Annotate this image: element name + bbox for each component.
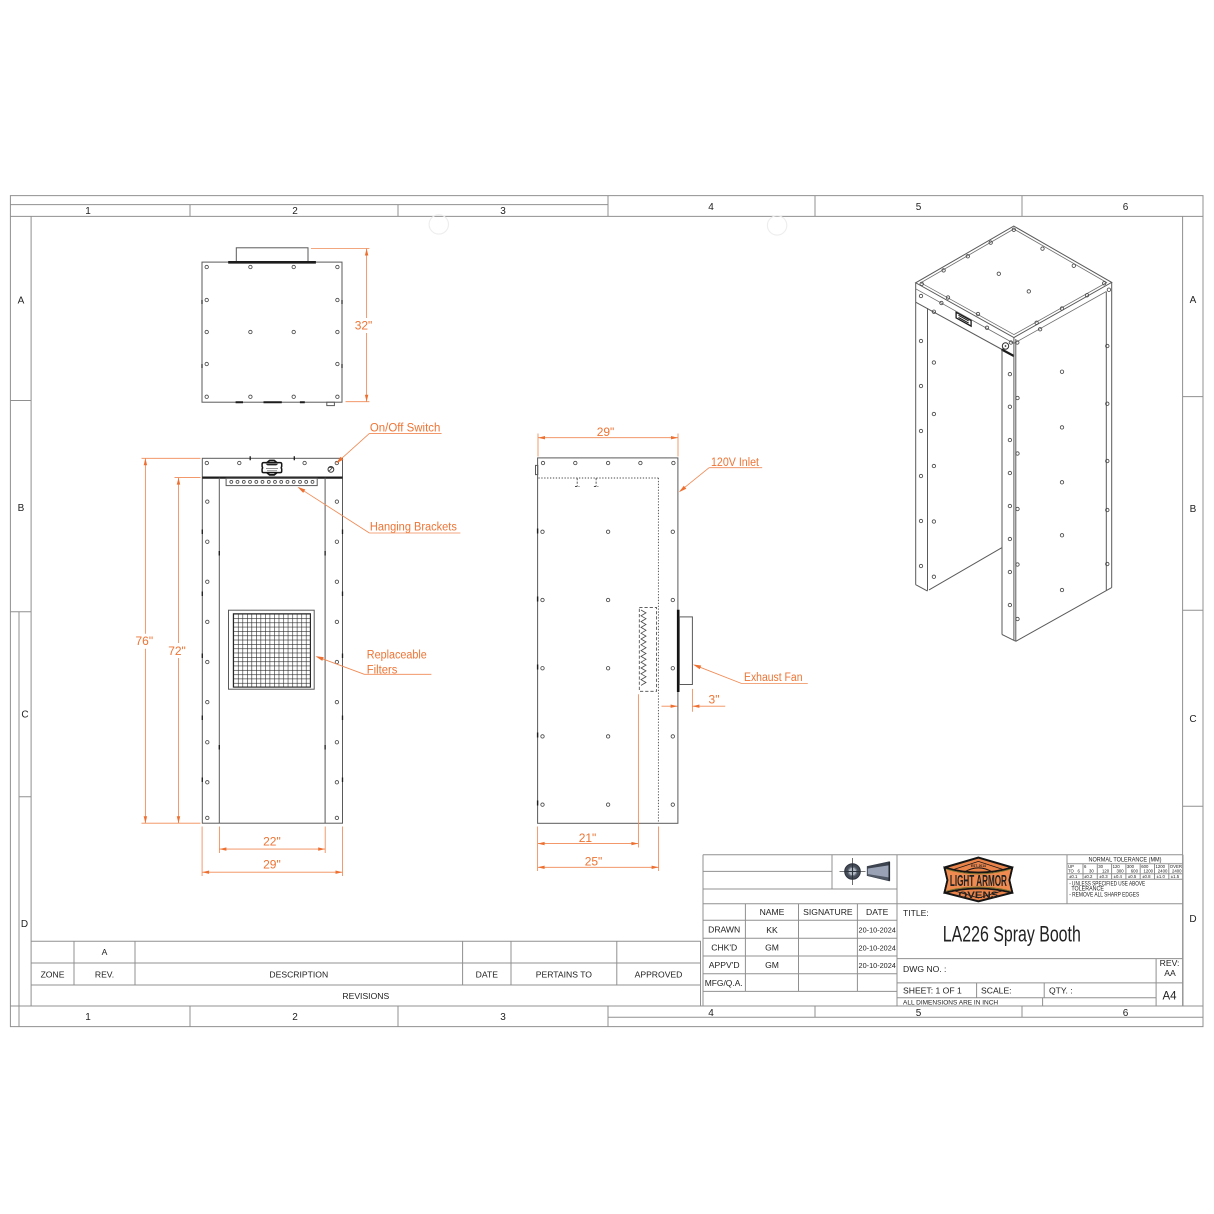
- svg-text:3: 3: [500, 1012, 506, 1023]
- svg-text:1: 1: [85, 1012, 91, 1023]
- svg-text:D: D: [21, 919, 28, 930]
- svg-text:21": 21": [579, 831, 597, 845]
- svg-text:REV.: REV.: [95, 969, 114, 979]
- svg-text:76": 76": [135, 634, 153, 648]
- svg-text:C: C: [21, 710, 28, 721]
- svg-text:±0.4: ±0.4: [1114, 874, 1123, 879]
- svg-text:KK: KK: [766, 925, 778, 935]
- svg-text:±0.3: ±0.3: [1099, 874, 1108, 879]
- svg-text:A4: A4: [1162, 991, 1177, 1003]
- svg-text:20-10-2024: 20-10-2024: [859, 943, 896, 952]
- svg-text:SIGNATURE: SIGNATURE: [803, 907, 853, 917]
- svg-text:6: 6: [1123, 1008, 1129, 1019]
- svg-text:DATE: DATE: [476, 969, 499, 979]
- svg-text:A: A: [18, 296, 25, 307]
- svg-text:GM: GM: [765, 960, 779, 970]
- svg-text:DWG NO. :: DWG NO. :: [903, 964, 946, 974]
- svg-text:ALL DIMENSIONS ARE IN INCH: ALL DIMENSIONS ARE IN INCH: [903, 1000, 998, 1007]
- svg-text:±0.5: ±0.5: [1128, 874, 1137, 879]
- svg-text:REV:: REV:: [1160, 958, 1180, 968]
- svg-text:B: B: [1190, 504, 1197, 515]
- svg-text:20-10-2024: 20-10-2024: [859, 961, 896, 970]
- svg-text:QTY. :: QTY. :: [1049, 985, 1073, 995]
- svg-text:Exhaust Fan: Exhaust Fan: [744, 672, 803, 684]
- svg-text:120V Inlet: 120V Inlet: [711, 457, 760, 469]
- svg-text:±0.8: ±0.8: [1142, 874, 1151, 879]
- svg-text:±0.1: ±0.1: [1069, 874, 1078, 879]
- svg-text:2: 2: [292, 206, 298, 217]
- svg-text:Replaceable: Replaceable: [367, 649, 427, 661]
- svg-text:32": 32": [355, 319, 373, 333]
- svg-text:On/Off Switch: On/Off Switch: [370, 422, 441, 434]
- svg-text:Hanging Brackets: Hanging Brackets: [370, 522, 457, 534]
- svg-text:6: 6: [1123, 202, 1129, 213]
- svg-text:25": 25": [585, 855, 603, 869]
- svg-text:±1.0: ±1.0: [1157, 874, 1166, 879]
- svg-text:NAME: NAME: [760, 907, 785, 917]
- svg-text:AA: AA: [1164, 968, 1176, 978]
- svg-text:±1.5: ±1.5: [1171, 874, 1180, 879]
- svg-text:LA226 Spray Booth: LA226 Spray Booth: [943, 922, 1081, 947]
- svg-text:TITLE:: TITLE:: [903, 908, 929, 918]
- svg-text:CHK'D: CHK'D: [711, 942, 737, 952]
- svg-text:EST. 2014: EST. 2014: [971, 864, 986, 868]
- svg-text:PERTAINS TO: PERTAINS TO: [536, 969, 593, 979]
- svg-text:72": 72": [168, 644, 186, 658]
- svg-text:4: 4: [708, 202, 714, 213]
- svg-text:D: D: [1189, 914, 1196, 925]
- svg-text:1: 1: [85, 206, 91, 217]
- svg-text:5: 5: [916, 202, 922, 213]
- svg-text:C: C: [1189, 714, 1196, 725]
- svg-text:SHEET: 1 OF 1: SHEET: 1 OF 1: [903, 985, 962, 995]
- svg-text:3": 3": [709, 693, 720, 707]
- svg-text:DATE: DATE: [866, 907, 889, 917]
- svg-text:- REMOVE ALL SHARP EDGES: - REMOVE ALL SHARP EDGES: [1069, 892, 1139, 899]
- svg-text:29": 29": [597, 425, 615, 439]
- svg-text:DESCRIPTION: DESCRIPTION: [269, 969, 328, 979]
- svg-text:DRAWN: DRAWN: [708, 924, 740, 934]
- svg-text:2: 2: [292, 1012, 298, 1023]
- svg-text:OVENS: OVENS: [958, 890, 998, 900]
- svg-text:A: A: [1190, 295, 1197, 306]
- svg-text:B: B: [18, 503, 25, 514]
- svg-text:LIGHT ARMOR: LIGHT ARMOR: [950, 873, 1007, 890]
- svg-text:SCALE:: SCALE:: [981, 985, 1012, 995]
- svg-text:20-10-2024: 20-10-2024: [859, 925, 896, 934]
- svg-text:5: 5: [916, 1008, 922, 1019]
- svg-text:A: A: [102, 947, 108, 957]
- svg-text:REVISIONS: REVISIONS: [342, 991, 389, 1001]
- svg-text:APPV'D: APPV'D: [709, 960, 740, 970]
- svg-text:4: 4: [708, 1008, 714, 1019]
- svg-text:22": 22": [263, 835, 281, 849]
- svg-text:3: 3: [500, 206, 506, 217]
- svg-text:±0.2: ±0.2: [1084, 874, 1093, 879]
- svg-text:29": 29": [263, 858, 281, 872]
- svg-text:ZONE: ZONE: [41, 969, 65, 979]
- svg-text:NORMAL TOLERANCE (MM): NORMAL TOLERANCE (MM): [1089, 856, 1162, 863]
- svg-text:MFG/Q.A.: MFG/Q.A.: [705, 978, 743, 988]
- svg-text:GM: GM: [765, 942, 779, 952]
- svg-text:APPROVED: APPROVED: [635, 969, 683, 979]
